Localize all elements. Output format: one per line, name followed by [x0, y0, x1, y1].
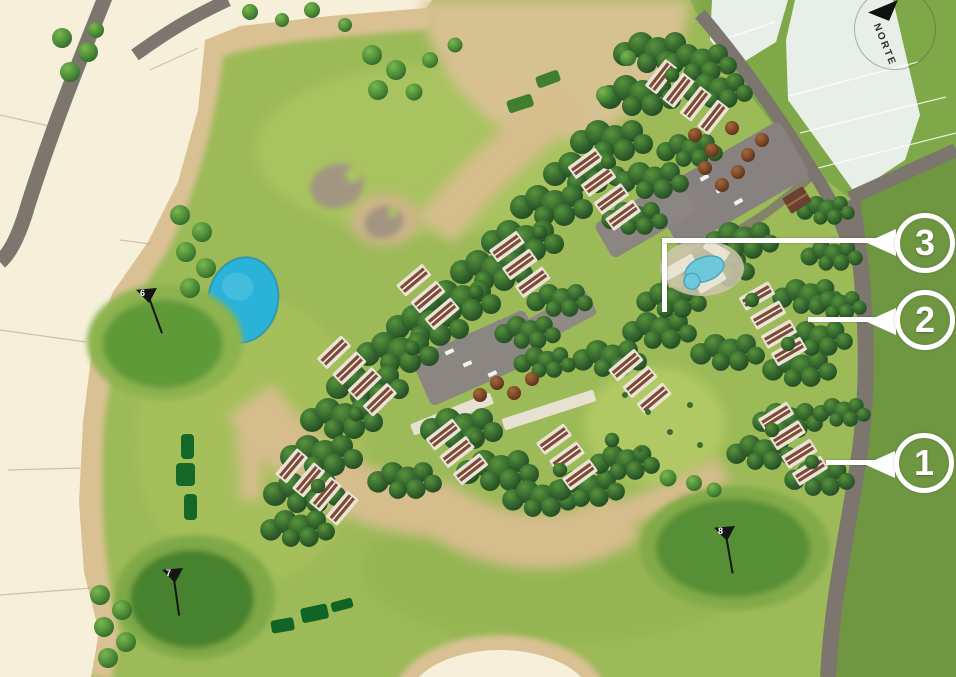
callout-2-number: 2: [915, 302, 935, 338]
hole-number: 7: [166, 569, 171, 578]
callout-1-number: 1: [914, 445, 934, 481]
callout-3[interactable]: 3: [895, 213, 955, 273]
hole-number: 8: [718, 527, 723, 536]
hole-8-flag: 8: [714, 526, 748, 578]
hole-7-flag: 7: [162, 568, 196, 620]
hole-6-flag: 6: [136, 288, 170, 340]
callout-3-leader-v: [662, 238, 667, 312]
hole-number: 6: [140, 289, 145, 298]
callout-3-leader-h: [662, 238, 894, 243]
north-indicator: NORTE: [845, 0, 956, 160]
callout-3-number: 3: [915, 225, 935, 261]
callout-2[interactable]: 2: [895, 290, 955, 350]
callout-1[interactable]: 1: [894, 433, 954, 493]
resort-master-plan: 6 7 8 NORTE 3 2 1: [0, 0, 956, 677]
